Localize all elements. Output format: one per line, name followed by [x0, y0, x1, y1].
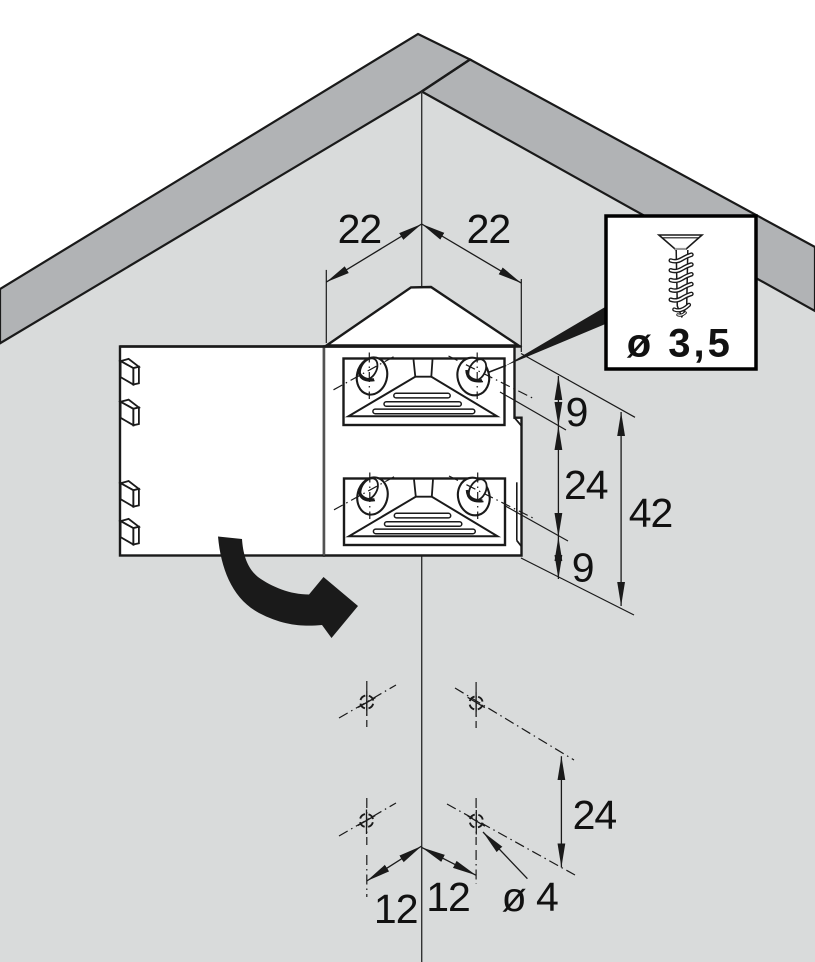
svg-text:12: 12: [426, 874, 470, 920]
svg-text:ø 3,5: ø 3,5: [627, 322, 733, 366]
svg-text:22: 22: [467, 206, 511, 252]
svg-text:24: 24: [573, 792, 617, 838]
svg-text:24: 24: [564, 462, 608, 508]
svg-text:22: 22: [338, 206, 382, 252]
svg-text:9: 9: [572, 545, 594, 591]
svg-text:12: 12: [374, 886, 418, 932]
svg-text:42: 42: [629, 490, 673, 536]
svg-text:9: 9: [566, 389, 588, 435]
svg-text:ø 4: ø 4: [502, 874, 558, 920]
